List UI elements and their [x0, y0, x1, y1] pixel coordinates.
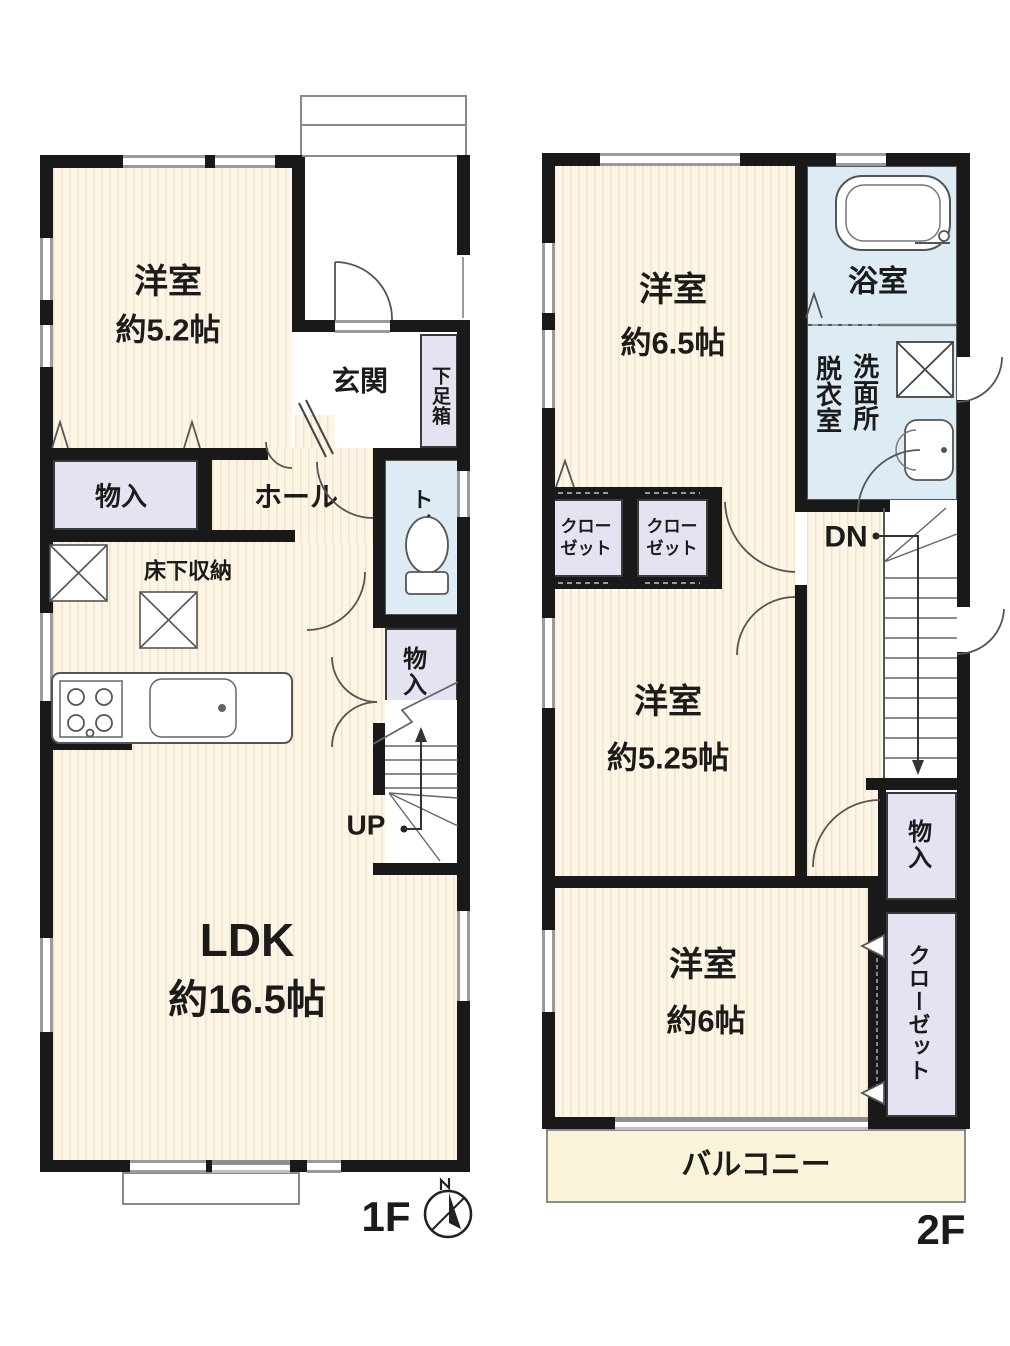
window-marker	[40, 238, 53, 300]
stairs-up-label: UP	[347, 810, 386, 839]
wall-segment	[373, 615, 458, 628]
wall-segment	[292, 157, 305, 329]
wall-segment	[40, 448, 268, 460]
storage-label: 物入	[399, 646, 424, 698]
wall-segment	[40, 530, 295, 542]
genkan-label: 玄関	[332, 366, 388, 395]
wall-segment	[957, 652, 970, 1129]
ldk-label: LDK	[200, 916, 295, 964]
floor1-label: 1F	[361, 1195, 410, 1239]
window-marker	[123, 155, 205, 168]
wall-segment	[878, 780, 886, 1117]
window-marker	[40, 938, 53, 1032]
balcony-label: バルコニー	[681, 1149, 830, 1181]
room-label: 洋室	[634, 685, 702, 721]
room-area-label: 約6帖	[666, 1006, 745, 1039]
wall-segment	[373, 863, 458, 875]
closet-tall-label: クローゼット	[906, 944, 929, 1082]
terrace-step	[122, 1172, 300, 1205]
window-marker	[600, 153, 740, 166]
wall-segment	[542, 577, 722, 589]
window-marker	[130, 1160, 206, 1173]
wall-segment	[373, 460, 385, 628]
window-marker	[542, 243, 555, 313]
washroom-label-right: 洗面所	[850, 353, 877, 431]
wall-segment	[957, 400, 970, 607]
window-marker	[40, 325, 53, 367]
wall-segment	[457, 320, 470, 1172]
entrance-door-sill	[335, 320, 390, 333]
closet-label-line1: クロー	[561, 518, 612, 536]
wall-segment	[40, 741, 132, 750]
sliding-door-marker	[212, 1160, 290, 1173]
wall-segment	[878, 900, 970, 912]
window-marker	[457, 471, 470, 517]
window-marker	[307, 1160, 341, 1173]
hall2-floor	[807, 505, 882, 876]
floorplan-canvas: 洋室 約5.2帖 玄関 下足箱 物入 ホール トイレ 床下収納 物入 UP LD…	[0, 0, 1010, 1346]
closet-label-line2: ゼット	[647, 540, 698, 558]
storage-label: 物入	[904, 819, 929, 871]
room-western-5-25	[554, 589, 795, 876]
bath-room	[807, 166, 957, 325]
wall-segment	[542, 876, 880, 888]
room-area-label: 約5.25帖	[607, 743, 729, 776]
floor2-label: 2F	[916, 1208, 965, 1252]
wall-segment	[292, 320, 335, 332]
window-marker	[542, 618, 555, 708]
window-marker	[457, 911, 470, 1001]
wall-segment	[198, 448, 212, 542]
closet-label-line1: クロー	[647, 518, 698, 536]
entrance-porch	[300, 95, 467, 157]
stairs-down-label: DN	[824, 521, 867, 553]
compass-north-icon	[425, 1178, 471, 1237]
closet-left-box	[550, 499, 623, 577]
door-opening	[957, 357, 970, 400]
room-label: 洋室	[639, 273, 707, 309]
wall-segment	[795, 585, 807, 876]
washroom-label-left: 脱衣室	[813, 355, 840, 433]
sliding-door-marker	[615, 1117, 868, 1130]
window-marker	[836, 153, 886, 166]
wall-segment	[708, 487, 722, 589]
wall-segment	[623, 487, 637, 589]
passage-floor	[722, 487, 795, 589]
wall-segment	[795, 153, 807, 505]
door-opening	[957, 607, 970, 652]
hall-step-floor	[295, 415, 335, 448]
room-label: 洋室	[669, 948, 737, 984]
room-western-5-2	[53, 167, 292, 448]
closet-right-box	[637, 499, 708, 577]
wall-segment	[957, 153, 970, 357]
wall-segment	[866, 778, 970, 790]
wall-segment	[457, 155, 470, 255]
window-marker	[40, 613, 53, 701]
ldk-area-label: 約16.5帖	[168, 979, 326, 1021]
room-area-label: 約5.2帖	[115, 315, 220, 348]
closet-label-line2: ゼット	[561, 540, 612, 558]
wall-segment	[795, 500, 890, 512]
stairs-up-floor	[385, 700, 458, 863]
window-marker	[542, 930, 555, 1012]
room-label: 洋室	[134, 265, 202, 301]
wall-segment	[390, 320, 458, 332]
window-marker	[215, 155, 275, 168]
underfloor-storage-label: 床下収納	[144, 559, 232, 582]
room-western-6	[554, 888, 868, 1117]
shoe-box-label: 下足箱	[429, 366, 449, 426]
door-arc-entrance	[335, 262, 392, 320]
toilet-label: トイレ	[409, 488, 432, 560]
hall-label: ホール	[254, 482, 338, 511]
stairs-down-floor	[882, 505, 957, 778]
wall-segment	[373, 448, 458, 460]
room-area-label: 約6.5帖	[620, 328, 725, 361]
storage-label: 物入	[95, 483, 147, 510]
bath-label: 浴室	[848, 266, 908, 298]
window-marker	[542, 330, 555, 408]
wall-segment	[373, 723, 385, 795]
